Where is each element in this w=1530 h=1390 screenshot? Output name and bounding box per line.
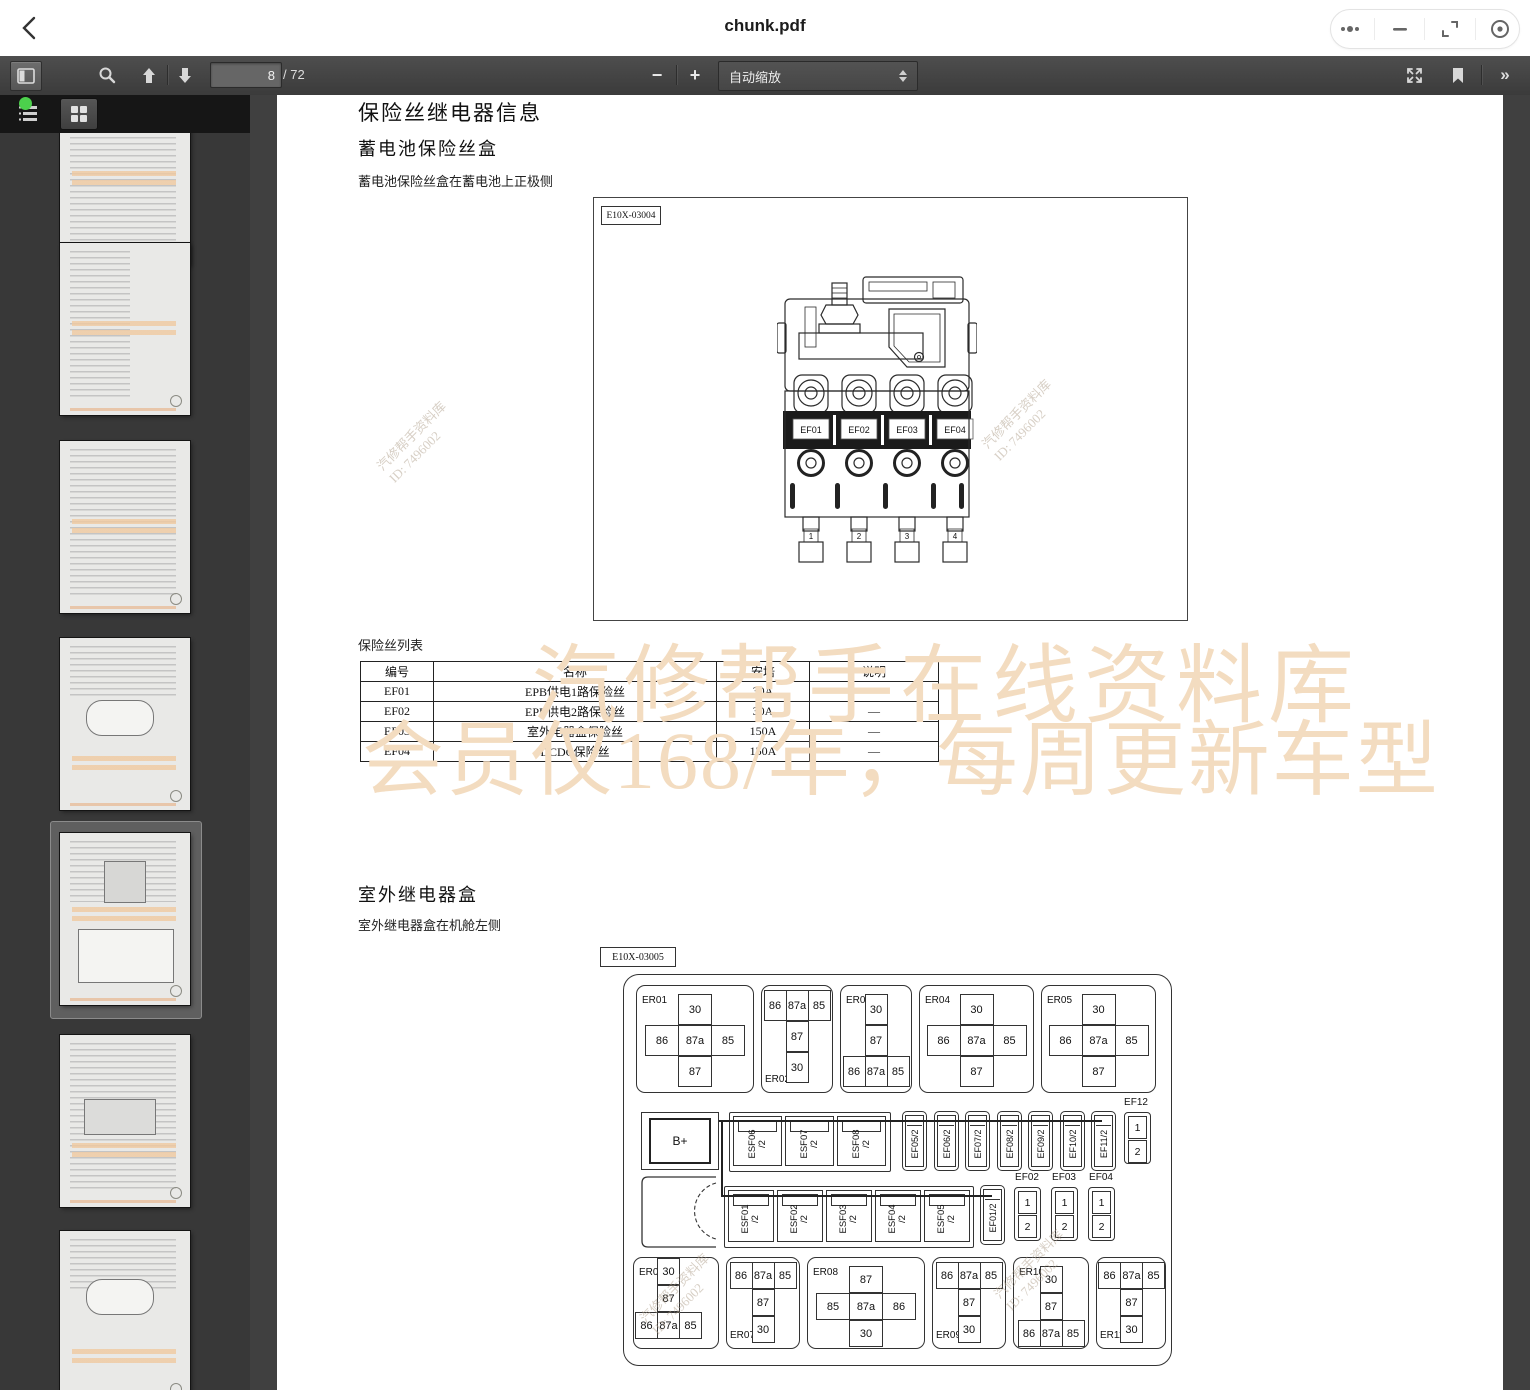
relay-pin-grid: 308687a8587 [1048,994,1150,1087]
fuse-table-cell: EF03 [361,722,434,742]
relay-pin-grid: 30878687a85 [842,994,911,1087]
restore-window-icon[interactable] [1437,16,1463,42]
divider [676,65,677,85]
relay-pin-87a: 87a [657,1312,680,1339]
relay-pin-grid: 8687a858730 [763,990,832,1083]
fuse-label-ef02: EF02 [1007,1172,1047,1183]
toggle-sidebar-button[interactable] [10,61,42,91]
relay-pin-87a: 87a [752,1262,775,1289]
relay-er07: ER078687a858730 [726,1257,800,1349]
battery-fusebox-drawing: EF01EF02EF03EF04 1234 [777,271,977,567]
fuse-cell-2: 2 [1128,1140,1147,1163]
svg-text:1: 1 [809,532,814,541]
section-relay-box: 室外继电器盒 [358,881,478,907]
figure2-tag: E10X-03005 [600,947,676,967]
relay-pin-87: 87 [960,1056,994,1087]
bplus-terminal: B+ [641,1112,719,1170]
thumbnail-page-8[interactable] [60,833,190,1005]
fuse-table-cell: EF04 [361,742,434,762]
notch-cutout [632,1175,718,1249]
divider [1374,18,1375,40]
fuse-esf06: ESF06/2 [733,1116,782,1166]
zoom-level-select[interactable]: 自动缩放 [718,61,918,91]
relay-pin-30: 30 [960,994,994,1025]
relay-pin-30: 30 [865,994,888,1025]
relay-pin-85: 85 [887,1056,910,1087]
fuse-esf08: ESF08/2 [837,1116,886,1166]
thumbnail-page-9[interactable] [60,1035,190,1207]
relay-er08: ER08878587a8630 [807,1257,925,1349]
previous-page-button[interactable] [134,61,164,89]
relay-pin-86: 86 [1049,1025,1083,1056]
fuse-table-cell: DCDC保险丝 [434,742,717,762]
fuse-cell-1: 1 [1128,1116,1147,1139]
relay-pin-86: 86 [645,1025,679,1056]
watermark-diagonal: 汽修帮手资料库ID: 7496002 [373,398,461,486]
fuse-esf05: ESF05/2 [924,1190,970,1242]
relay-pin-85: 85 [774,1262,797,1289]
fuse-esf07: ESF07/2 [785,1116,834,1166]
thumbnail-page-6[interactable] [60,441,190,613]
relay-pin-87a: 87a [1040,1320,1063,1347]
relay-pin-87: 87 [1040,1293,1063,1320]
fuse-ef02: 12 [1014,1187,1041,1241]
relay-pin-30: 30 [1120,1316,1143,1343]
sidebar-view-switcher [0,95,250,133]
relay-pin-grid: 8687a858730 [729,1262,798,1343]
relay-pin-grid: 878587a8630 [815,1266,917,1347]
thumbnail-page-7[interactable] [60,638,190,810]
fuse-table-cell: 30A [717,702,810,722]
bplus-label: B+ [649,1118,711,1164]
fuse-table-cell: EPB供电1路保险丝 [434,682,717,702]
pdf-viewer-area[interactable]: 保险丝继电器信息 蓄电池保险丝盒 蓄电池保险丝盒在蓄电池上正极侧 E10X-03… [250,95,1530,1390]
relay-pin-87: 87 [1082,1056,1116,1087]
fuse-cell-1: 1 [1055,1191,1074,1214]
relay-pin-87: 87 [865,1025,888,1056]
section-battery-fusebox: 蓄电池保险丝盒 [358,135,498,161]
relay-pin-87: 87 [678,1056,712,1087]
page-title: 保险丝继电器信息 [358,97,542,127]
relay-pin-87a: 87a [1082,1025,1116,1056]
fuse-table-header-row: 编号名称安培说明 [361,662,939,682]
fuse-table-header: 名称 [434,662,717,682]
relay-pin-87a: 87a [865,1056,888,1087]
divider [1475,18,1476,40]
relay-pin-30: 30 [1082,994,1116,1025]
outline-view-button[interactable] [10,99,46,129]
relay-pin-86: 86 [635,1312,658,1339]
window-controls [1330,9,1520,49]
next-page-button[interactable] [170,61,200,89]
divider [1481,65,1482,85]
relay-pin-85: 85 [1142,1262,1165,1289]
fuse-cell-2: 2 [1055,1215,1074,1238]
thumbnail-page-10[interactable] [60,1231,190,1390]
battery-fusebox-figure: E10X-03004 [593,197,1188,621]
relay-pin-grid: 8687a858730 [1097,1262,1166,1343]
page-count-label: / 72 [283,67,305,82]
fuse-table-row: EF03室外电器盒保险丝150A— [361,722,939,742]
pdf-page: 保险丝继电器信息 蓄电池保险丝盒 蓄电池保险丝盒在蓄电池上正极侧 E10X-03… [277,95,1503,1390]
ef12-label: EF12 [1116,1097,1156,1108]
svg-text:EF01: EF01 [800,425,822,435]
relay-pin-grid: 30878687a85 [1017,1266,1086,1347]
relay-pin-87a: 87a [678,1025,712,1056]
fuse-label-ef03: EF03 [1044,1172,1084,1183]
fuse-table-row: EF02EPB供电2路保险丝30A— [361,702,939,722]
fuse-ef01-2: EF01/2 [980,1185,1005,1245]
relay-pin-87a: 87a [786,990,809,1021]
relay-pin-86: 86 [1018,1320,1041,1347]
fuse-ef04: 12 [1088,1187,1115,1241]
sidebar [0,95,250,1390]
zoom-in-button[interactable]: + [680,61,710,89]
fuse-table-cell: — [810,682,939,702]
relay-row-bottom: ER0630878687a85ER078687a858730ER08878587… [633,1257,1163,1349]
zoom-level-value: 自动缩放 [729,67,781,86]
relay-row-top: ER01308687a8587ER028687a858730ER03308786… [636,985,1163,1093]
relay-er05: ER05308687a8587 [1041,985,1156,1093]
relay-pin-30: 30 [657,1258,680,1285]
fuse-table-row: EF04DCDC保险丝150A— [361,742,939,762]
relay-pin-30: 30 [678,994,712,1025]
relay-er11: ER118687a858730 [1096,1257,1166,1349]
relay-pin-30: 30 [1040,1266,1063,1293]
fuse-cell-1: 1 [1018,1191,1037,1214]
battery-fusebox-caption: 蓄电池保险丝盒在蓄电池上正极侧 [358,171,553,190]
fuse-table-cell: 30A [717,682,810,702]
ef12-fuse: 12 [1124,1112,1151,1164]
relay-er02: ER028687a858730 [761,985,833,1093]
relay-pin-87a: 87a [958,1262,981,1289]
svg-text:3: 3 [905,532,910,541]
relay-pin-85: 85 [1115,1025,1149,1056]
fuse-table-header: 安培 [717,662,810,682]
relay-pin-86: 86 [936,1262,959,1289]
thumbnail-page-5[interactable] [60,243,190,415]
relay-pin-87: 87 [657,1285,680,1312]
fuse-table-header: 编号 [361,662,434,682]
relay-pin-87: 87 [958,1289,981,1316]
relay-pin-87a: 87a [960,1025,994,1056]
relay-pin-85: 85 [711,1025,745,1056]
bus-bar-a [719,1120,1102,1122]
fuse-table-cell: — [810,722,939,742]
relay-pin-86: 86 [764,990,787,1021]
relay-pin-87: 87 [849,1266,883,1293]
presentation-mode-icon[interactable] [1399,61,1429,89]
relay-pin-87: 87 [786,1021,809,1052]
status-dot [19,97,32,110]
svg-text:2: 2 [857,532,862,541]
relay-er09: ER098687a858730 [932,1257,1006,1349]
relay-pin-grid: 8687a858730 [935,1262,1004,1343]
relay-pin-85: 85 [816,1293,850,1320]
bookmark-icon[interactable] [1443,61,1473,89]
thumbnail-list [0,133,250,1390]
relay-pin-85: 85 [1062,1320,1085,1347]
relay-pin-85: 85 [679,1312,702,1339]
fuse-table: 编号名称安培说明EF01EPB供电1路保险丝30A—EF02EPB供电2路保险丝… [360,661,939,762]
fuse-table-cell: EF02 [361,702,434,722]
fuse-table-cell: 150A [717,742,810,762]
relay-er01: ER01308687a8587 [636,985,754,1093]
relay-pin-85: 85 [808,990,831,1021]
relay-er06: ER0630878687a85 [633,1257,719,1349]
pdfjs-toolbar: / 72 − + 自动缩放 » [0,56,1530,96]
relay-pin-30: 30 [752,1316,775,1343]
bus-bar-drop [721,1120,723,1197]
fuse-label-ef04: EF04 [1081,1172,1121,1183]
divider [167,65,168,85]
fuse-ef03: 12 [1051,1187,1078,1241]
fuse-esf01: ESF01/2 [728,1190,774,1242]
divider [1424,18,1425,40]
fuse-cell-1: 1 [1092,1191,1111,1214]
fuse-esf02: ESF02/2 [777,1190,823,1242]
thumbnails-view-button[interactable] [60,98,98,130]
relay-pin-30: 30 [786,1052,809,1083]
page-number-input[interactable] [210,62,282,88]
svg-text:EF02: EF02 [848,425,870,435]
relay-pin-grid: 308687a8587 [644,994,746,1087]
select-arrows-icon [899,70,907,82]
relay-pin-30: 30 [849,1320,883,1347]
relay-pin-86: 86 [730,1262,753,1289]
fuse-esf04: ESF04/2 [875,1190,921,1242]
fuse-list-title: 保险丝列表 [358,635,423,654]
relay-pin-87: 87 [1120,1289,1143,1316]
fuse-cell-2: 2 [1092,1215,1111,1238]
relay-pin-grid: 308687a8587 [926,994,1028,1087]
viewer-body: 保险丝继电器信息 蓄电池保险丝盒 蓄电池保险丝盒在蓄电池上正极侧 E10X-03… [0,95,1530,1390]
relay-pin-85: 85 [993,1025,1027,1056]
svg-text:EF04: EF04 [944,425,966,435]
svg-text:4: 4 [953,532,958,541]
relay-er04: ER04308687a8587 [919,985,1034,1093]
relay-pin-grid: 30878687a85 [634,1258,703,1339]
fuse-esf03: ESF03/2 [826,1190,872,1242]
bus-bar-b [721,1195,992,1197]
relay-pin-87a: 87a [849,1293,883,1320]
relay-pin-87a: 87a [1120,1262,1143,1289]
search-icon[interactable] [92,61,122,89]
relay-pin-85: 85 [980,1262,1003,1289]
relay-pin-86: 86 [1098,1262,1121,1289]
svg-text:EF03: EF03 [896,425,918,435]
relay-pin-86: 86 [843,1056,866,1087]
fuse-table-row: EF01EPB供电1路保险丝30A— [361,682,939,702]
close-circle-icon[interactable] [1487,16,1513,42]
fuse-cell-2: 2 [1018,1215,1037,1238]
relay-box-figure: ER01308687a8587ER028687a858730ER03308786… [623,974,1172,1366]
document-title: chunk.pdf [0,16,1530,36]
fuse-table-cell: EF01 [361,682,434,702]
relay-pin-86: 86 [927,1025,961,1056]
fuse-table-cell: 室外电器盒保险丝 [434,722,717,742]
titlebar: chunk.pdf [0,0,1530,57]
fuse-table-header: 说明 [810,662,939,682]
secondary-toolbar-toggle[interactable]: » [1490,61,1520,89]
fuse-table-cell: 150A [717,722,810,742]
relay-er03: ER0330878687a85 [840,985,912,1093]
relay-box-caption: 室外继电器盒在机舱左侧 [358,915,501,934]
fuse-table-cell: — [810,702,939,722]
pdf-viewer-app: chunk.pdf [0,0,1530,1390]
figure1-tag: E10X-03004 [601,206,661,225]
fuse-table-cell: EPB供电2路保险丝 [434,702,717,722]
minimize-icon[interactable] [1387,16,1413,42]
more-options-icon[interactable] [1337,16,1363,42]
relay-pin-30: 30 [958,1316,981,1343]
relay-pin-87: 87 [752,1289,775,1316]
relay-er10: ER1030878687a85 [1013,1257,1089,1349]
zoom-out-button[interactable]: − [642,61,672,89]
relay-pin-86: 86 [882,1293,916,1320]
fuse-table-cell: — [810,742,939,762]
